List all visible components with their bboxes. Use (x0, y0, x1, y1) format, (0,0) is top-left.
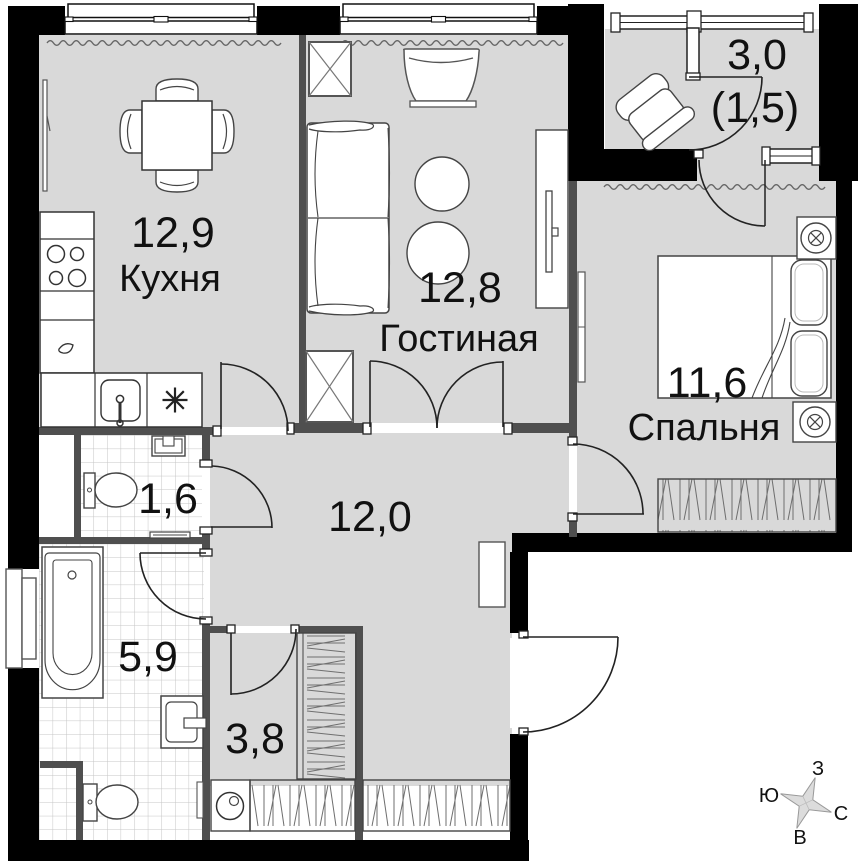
svg-text:11,6: 11,6 (667, 359, 748, 407)
svg-text:5,9: 5,9 (118, 633, 178, 681)
svg-text:З: З (812, 758, 824, 780)
svg-text:Спальня: Спальня (628, 407, 781, 449)
svg-text:Кухня: Кухня (119, 258, 221, 300)
svg-text:Ю: Ю (759, 785, 779, 807)
svg-text:3,8: 3,8 (225, 715, 285, 763)
svg-text:1,6: 1,6 (138, 475, 198, 523)
svg-text:С: С (834, 803, 848, 825)
svg-text:Гостиная: Гостиная (379, 318, 539, 360)
svg-text:3,0: 3,0 (727, 31, 787, 79)
svg-text:12,9: 12,9 (131, 209, 215, 257)
svg-text:12,8: 12,8 (418, 264, 502, 312)
svg-text:(1,5): (1,5) (711, 84, 799, 132)
svg-text:12,0: 12,0 (328, 493, 412, 541)
svg-text:В: В (793, 827, 806, 849)
